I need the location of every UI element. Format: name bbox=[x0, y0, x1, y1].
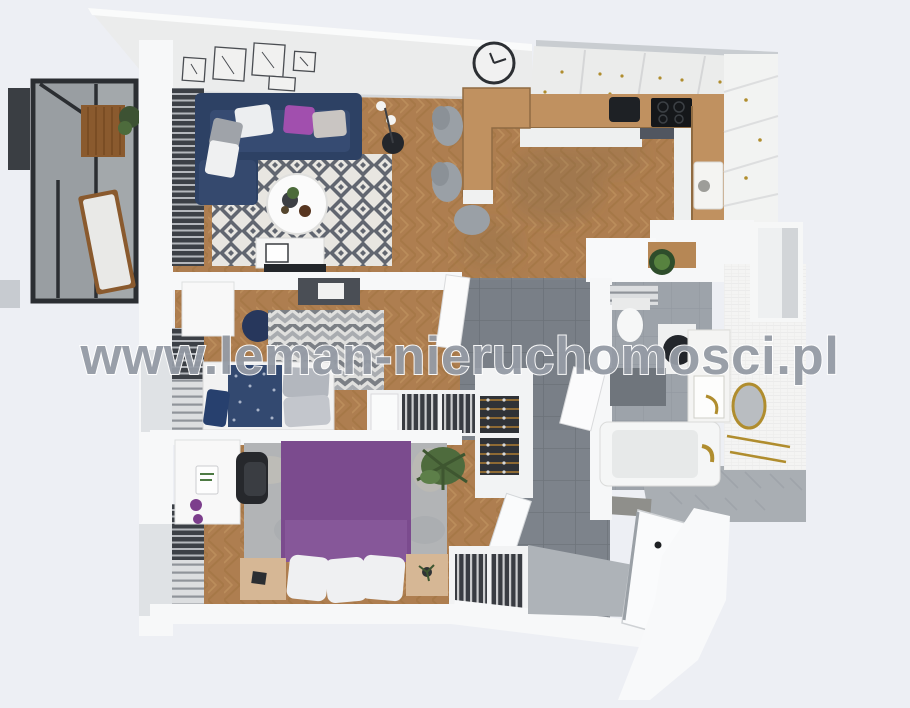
svg-text:www.leman-nieruchomosci.pl: www.leman-nieruchomosci.pl bbox=[79, 327, 839, 386]
